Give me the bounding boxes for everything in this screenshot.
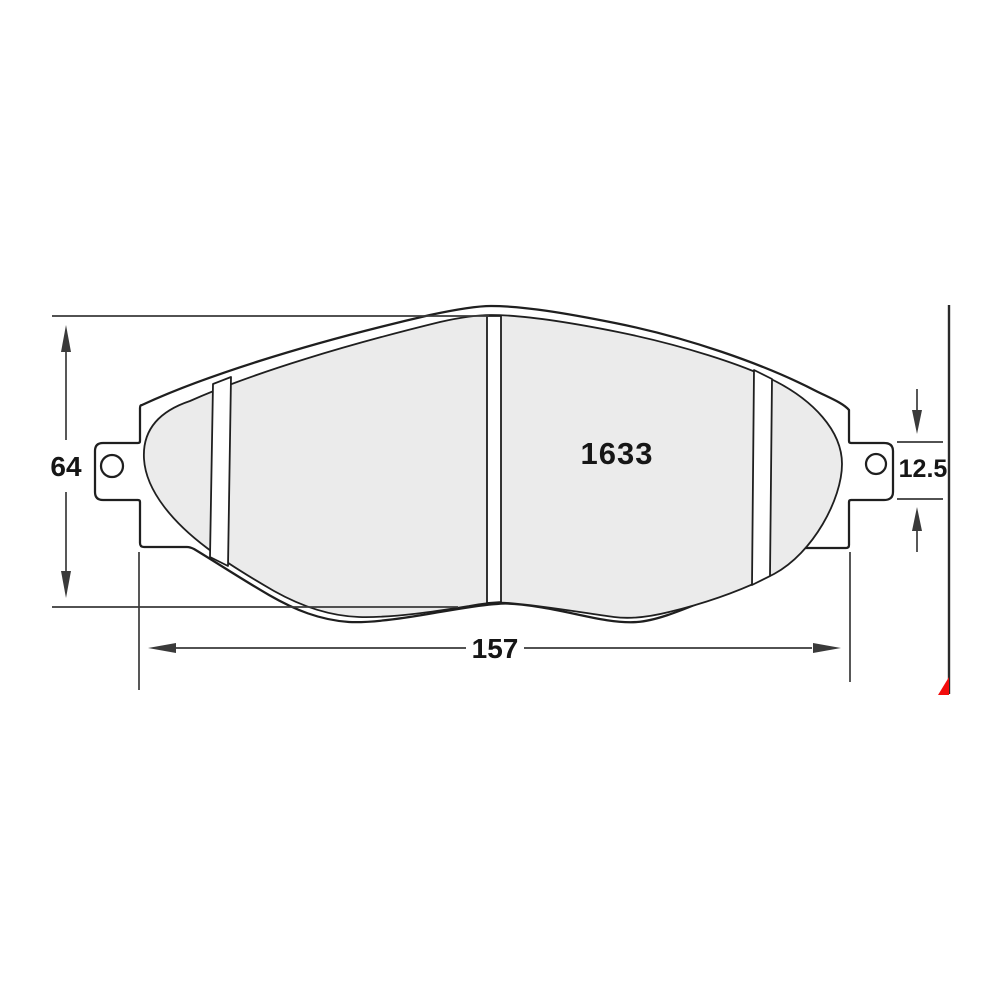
arrow-left-icon [148, 643, 176, 653]
right-tab-hole [866, 454, 886, 474]
right-reference [938, 305, 949, 695]
arrow-down-icon [61, 571, 71, 598]
left-tab-hole [101, 455, 123, 477]
red-corner-marker [938, 677, 949, 695]
dimension-tab-height: 12.5 [897, 389, 947, 552]
length-value-label: 157 [472, 633, 519, 664]
arrow-down-icon [912, 410, 922, 434]
arrow-up-icon [912, 507, 922, 531]
tab-height-value-label: 12.5 [899, 455, 948, 483]
arrow-up-icon [61, 325, 71, 352]
part-number: 1633 [581, 436, 654, 471]
groove-left [210, 377, 231, 566]
height-value-label: 64 [50, 451, 82, 482]
groove-center [487, 316, 501, 603]
groove-right [752, 370, 772, 585]
brake-pad-technical-drawing: 1633 64 157 12.5 [0, 0, 1000, 1000]
arrow-right-icon [813, 643, 841, 653]
drawing-sheet: 1633 64 157 12.5 [0, 0, 1000, 1000]
